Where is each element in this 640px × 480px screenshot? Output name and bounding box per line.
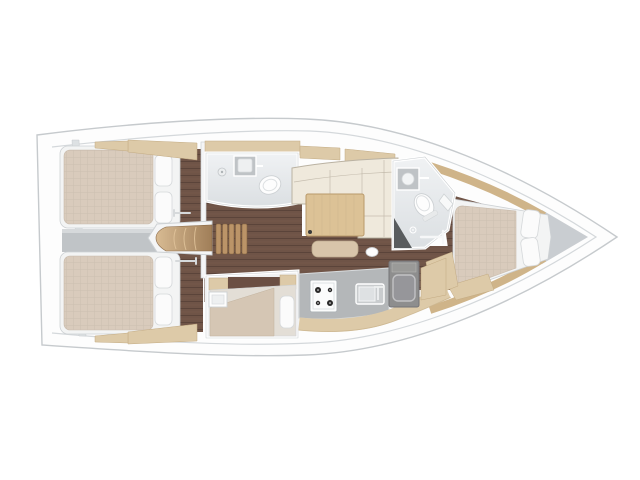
drain-dot (412, 229, 414, 231)
saloon-table (306, 194, 364, 236)
galley-sink-icon (356, 284, 384, 304)
engine-compartment-strip (62, 229, 160, 252)
pillow (280, 296, 294, 328)
pillow (155, 192, 172, 223)
aft-cabin-port (60, 140, 197, 228)
pillow (155, 294, 172, 325)
yacht-floor-plan (0, 0, 640, 480)
fridge-box (389, 261, 419, 307)
washbasin-icon (238, 159, 252, 172)
pillow (155, 155, 172, 186)
double-bed-mattress (64, 256, 153, 330)
aft-port-floor-strip (179, 149, 203, 229)
pillow (520, 209, 541, 239)
pillow (155, 257, 172, 288)
locker-above-sofa (300, 146, 340, 160)
berth-washbasin-bowl (212, 295, 224, 304)
floor-plan-image (0, 0, 640, 480)
table-leg-dot (308, 230, 312, 234)
drain-dot (221, 171, 223, 173)
companionway-steps (216, 224, 247, 254)
aft-cabin-starboard (60, 252, 197, 344)
stove-icon (310, 280, 337, 312)
single-berth-cabin (206, 271, 298, 338)
aft-head-bathroom (206, 153, 298, 207)
berth-shelf-left (209, 278, 228, 290)
bench-seat (312, 241, 358, 257)
pillow (520, 237, 541, 267)
aft-starboard-floor-strip (179, 252, 203, 332)
floor-pouf (366, 248, 378, 257)
double-bed-mattress (64, 150, 153, 224)
gray-strip-highlight (62, 229, 160, 233)
washbasin-icon (402, 173, 414, 185)
